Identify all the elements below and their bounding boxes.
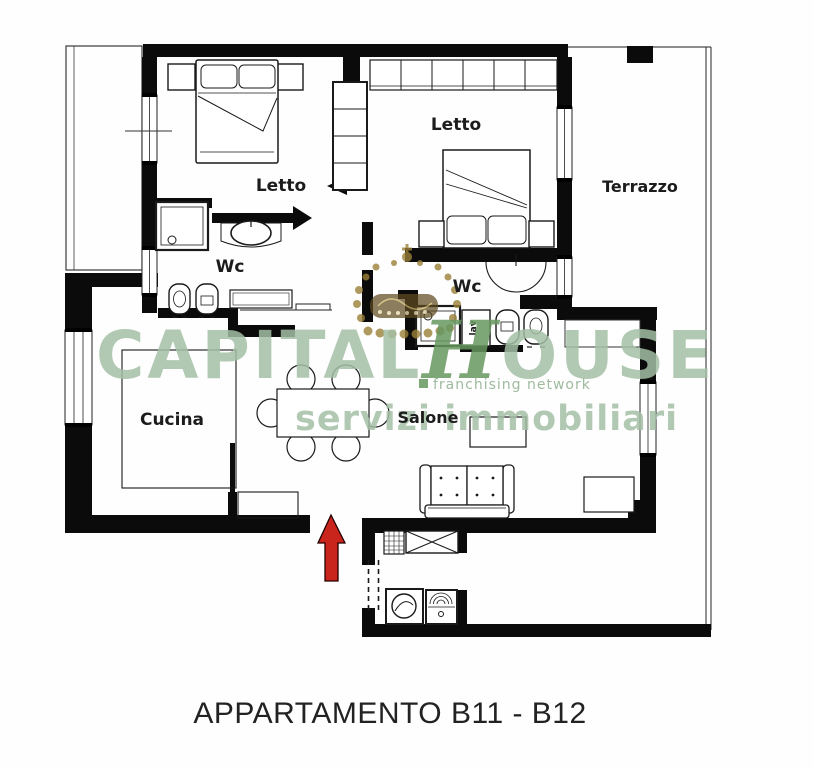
room-label-cucina: Cucina	[140, 410, 204, 430]
nightstand	[529, 221, 554, 247]
bidet	[169, 284, 190, 317]
washing-machine	[386, 589, 423, 624]
floor-plan-page: lav	[0, 0, 813, 768]
closet-row	[370, 60, 557, 90]
plan-title: APPARTAMENTO B11 - B12	[193, 697, 586, 730]
toilet	[196, 284, 218, 317]
room-label-wc1: Wc	[216, 257, 245, 277]
room-label-letto2: Letto	[431, 115, 481, 135]
pillow	[488, 216, 526, 244]
watermark-tagline: franchising network	[433, 377, 591, 393]
pillow	[447, 216, 486, 244]
pillow	[201, 65, 237, 88]
brand-capital: CAPITAL	[96, 317, 422, 394]
utility-area	[369, 531, 459, 624]
radiator	[384, 531, 404, 554]
nightstand	[168, 64, 195, 90]
tv-cabinet	[584, 477, 634, 512]
sofa	[420, 465, 514, 518]
room-label-wc2: Wc	[453, 277, 482, 297]
room-label-letto1: Letto	[256, 176, 306, 196]
svg-text:CAPITALHOUSE: CAPITALHOUSE	[96, 303, 715, 397]
entrance-arrow-icon	[318, 515, 345, 581]
window	[65, 328, 92, 427]
nightstand	[419, 221, 444, 247]
watermark-subtitle: servizi immobiliari	[295, 399, 678, 439]
stove	[426, 590, 457, 624]
door-leaf	[296, 304, 330, 310]
brand-square-icon	[419, 379, 428, 388]
window	[557, 255, 572, 299]
room-label-terrazzo: Terrazzo	[602, 177, 678, 196]
floor-plan-svg: lav	[0, 0, 813, 768]
bath-cabinet	[230, 290, 292, 308]
bedroom1-furniture	[168, 60, 367, 190]
nightstand	[276, 64, 303, 90]
shower-box	[156, 202, 208, 250]
wardrobe-column	[333, 82, 367, 190]
room-label-salone: Salone	[397, 408, 458, 427]
sink	[221, 221, 281, 247]
pillow	[239, 65, 275, 88]
threshold-dashed	[369, 560, 379, 612]
kitchen-side-counter	[238, 492, 298, 518]
window	[557, 105, 572, 182]
balcony-left	[66, 46, 142, 270]
window	[142, 246, 157, 297]
door-arrow-wc1-icon	[293, 206, 312, 230]
window	[142, 93, 157, 165]
storage-crate	[406, 531, 458, 553]
